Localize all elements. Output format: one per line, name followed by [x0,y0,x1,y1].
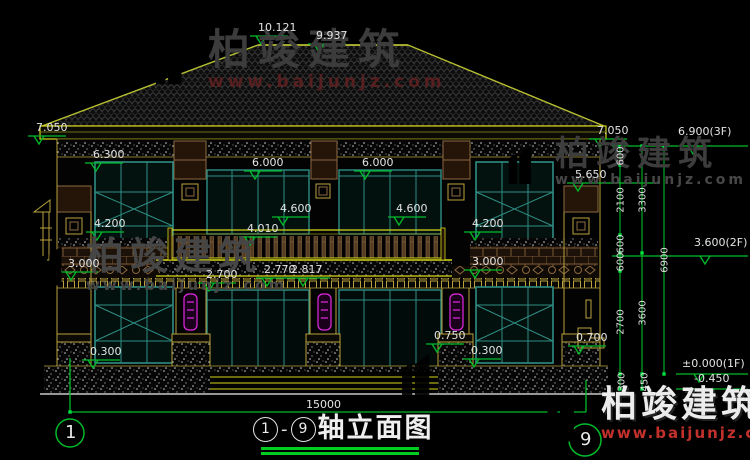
title-axis-end: 9 [291,417,316,442]
entry-doors-left [207,290,309,372]
dim-label: 6.000 [362,157,394,168]
dim-label: 3.000 [472,256,504,267]
vdim-label: 600 [617,234,627,253]
entry-doors-right [339,290,441,372]
axis-bubble-9-label: 9 [580,431,591,449]
floor-label-2f: 3.600(2F) [694,237,747,248]
dim-label: 0.700 [576,332,608,343]
dim-label: 0.300 [471,345,503,356]
floor-label-1f: ±0.000(1F) [682,358,745,369]
axis-bubble-1-label: 1 [65,424,76,442]
dim-label: 4.600 [280,203,312,214]
vdim-label: 3600 [639,300,649,325]
roof [42,45,604,126]
dim-label: 10.121 [258,22,297,33]
eave-fascia [40,126,606,139]
dim-label: 2.700 [206,269,238,280]
drawing-title: 1 - 9 轴立面图 [253,415,434,443]
dim-label: 9.937 [316,30,348,41]
dim-label: 7.050 [36,122,68,133]
dim-label: 2.817 [291,264,323,275]
title-axis-start: 1 [253,417,278,442]
left-wall-fixture [34,200,52,260]
vdim-label: 300 [618,372,628,391]
dim-label: 4.200 [94,218,126,229]
title-dash: - [281,419,288,440]
vdim-label: 3300 [639,187,649,212]
vdim-label: 600 [617,146,627,165]
cad-elevation-drawing: 柏竣建筑 www.baijunjz.com 柏竣建筑 www.baijunjz.… [0,0,750,460]
overall-dimension: 15000 [306,399,341,410]
title-underline [261,452,419,455]
dim-label: 4.200 [472,218,504,229]
vdim-label: 600 [617,252,627,271]
dim-label: 6.000 [252,157,284,168]
vdim-label: 450 [641,372,651,391]
title-text: 轴立面图 [318,415,434,443]
dim-label: 0.300 [90,346,122,357]
vdim-label: 2100 [617,187,627,212]
floor-label-neg: -0.450 [694,373,729,384]
dim-label: 3.000 [68,258,100,269]
base-course [44,366,608,394]
dim-label: 5.650 [575,169,607,180]
floor-label-3f: 6.900(3F) [678,126,731,137]
dim-label: 7.050 [597,125,629,136]
vdim-label: 6900 [661,247,671,272]
dim-label: 0.750 [434,330,466,341]
building-linework [0,0,750,460]
title-underline [261,447,419,450]
dim-label: 4.010 [247,223,279,234]
dim-label: 4.600 [396,203,428,214]
vdim-label: 2700 [617,309,627,334]
dim-label: 6.300 [93,149,125,160]
